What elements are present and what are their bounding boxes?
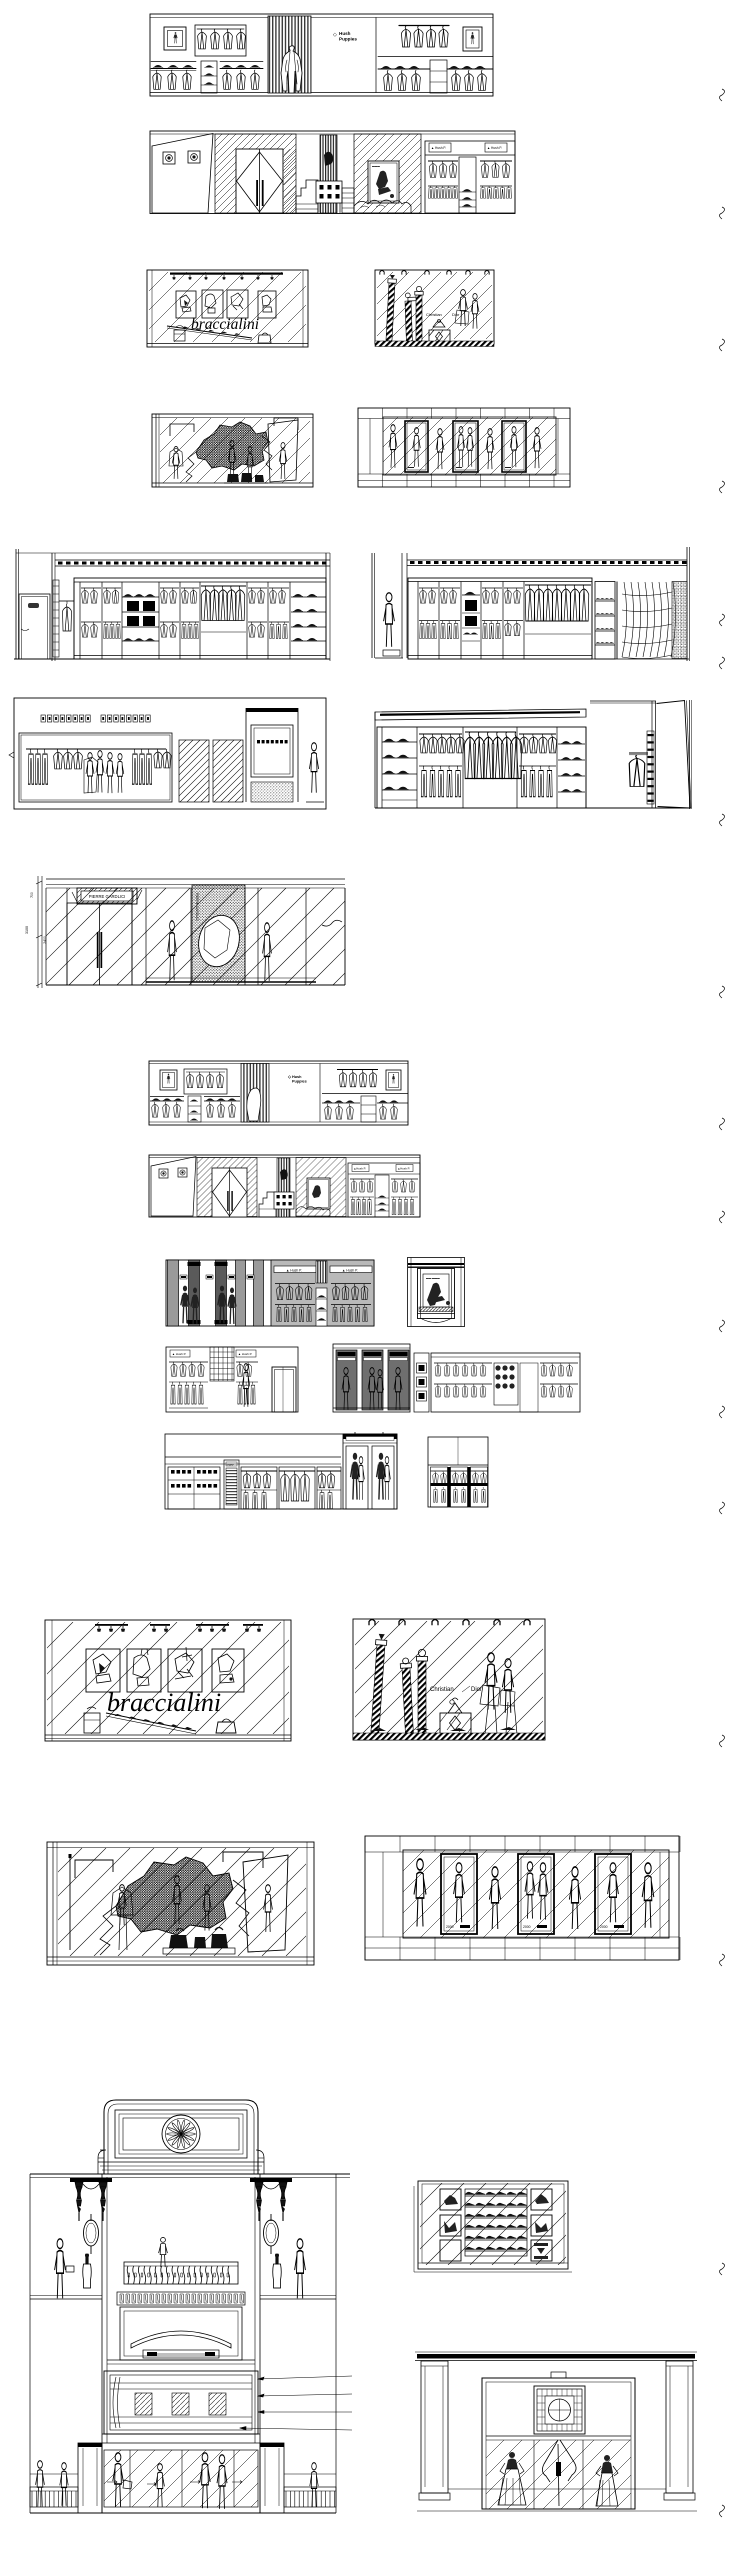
svg-text:SHARP: SHARP	[227, 1463, 235, 1466]
svg-text:Puppies: Puppies	[292, 1080, 307, 1084]
svg-text:▬▬: ▬▬	[456, 465, 462, 469]
svg-text:▲ Hush P.: ▲ Hush P.	[431, 146, 446, 150]
svg-text:▬▬▬: ▬▬▬	[372, 165, 380, 168]
svg-text:▲Hush P.: ▲Hush P.	[398, 1167, 411, 1171]
svg-text:▲ Hush P.: ▲ Hush P.	[487, 146, 502, 150]
svg-text:700: 700	[30, 892, 34, 898]
svg-text:▬▬: ▬▬	[408, 465, 414, 469]
svg-text:▲ Hush P.: ▲ Hush P.	[172, 1352, 186, 1356]
svg-text:Dior: Dior	[471, 1687, 482, 1693]
svg-text:◇: ◇	[333, 32, 337, 38]
svg-text:PIERRE GARDLICI: PIERRE GARDLICI	[89, 894, 126, 899]
svg-text:Hush: Hush	[339, 31, 351, 36]
svg-text:3100: 3100	[25, 926, 29, 934]
svg-text:2000: 2000	[523, 1925, 531, 1929]
svg-text:▲ Hush P.: ▲ Hush P.	[342, 1268, 358, 1272]
svg-text:▲ Hush P.: ▲ Hush P.	[238, 1352, 252, 1356]
svg-text:braccialini: braccialini	[107, 1688, 221, 1717]
svg-text:2000: 2000	[446, 1925, 454, 1929]
svg-text:2000: 2000	[600, 1925, 608, 1929]
svg-text:▬▬ ▬▬▬: ▬▬ ▬▬▬	[426, 1277, 440, 1280]
svg-text:▬▬: ▬▬	[505, 465, 511, 469]
svg-text:▲Hush P.: ▲Hush P.	[354, 1167, 367, 1171]
svg-text:Christian: Christian	[430, 1687, 454, 1693]
svg-text:▲ Hush P.: ▲ Hush P.	[286, 1268, 302, 1272]
svg-text:PIERRE GARDLICI: PIERRE GARDLICI	[195, 893, 199, 921]
svg-text:Puppies: Puppies	[339, 37, 357, 42]
svg-text:Christian: Christian	[426, 312, 442, 317]
svg-text:◇ Hush: ◇ Hush	[287, 1075, 302, 1079]
svg-text:2400: 2400	[43, 936, 47, 944]
